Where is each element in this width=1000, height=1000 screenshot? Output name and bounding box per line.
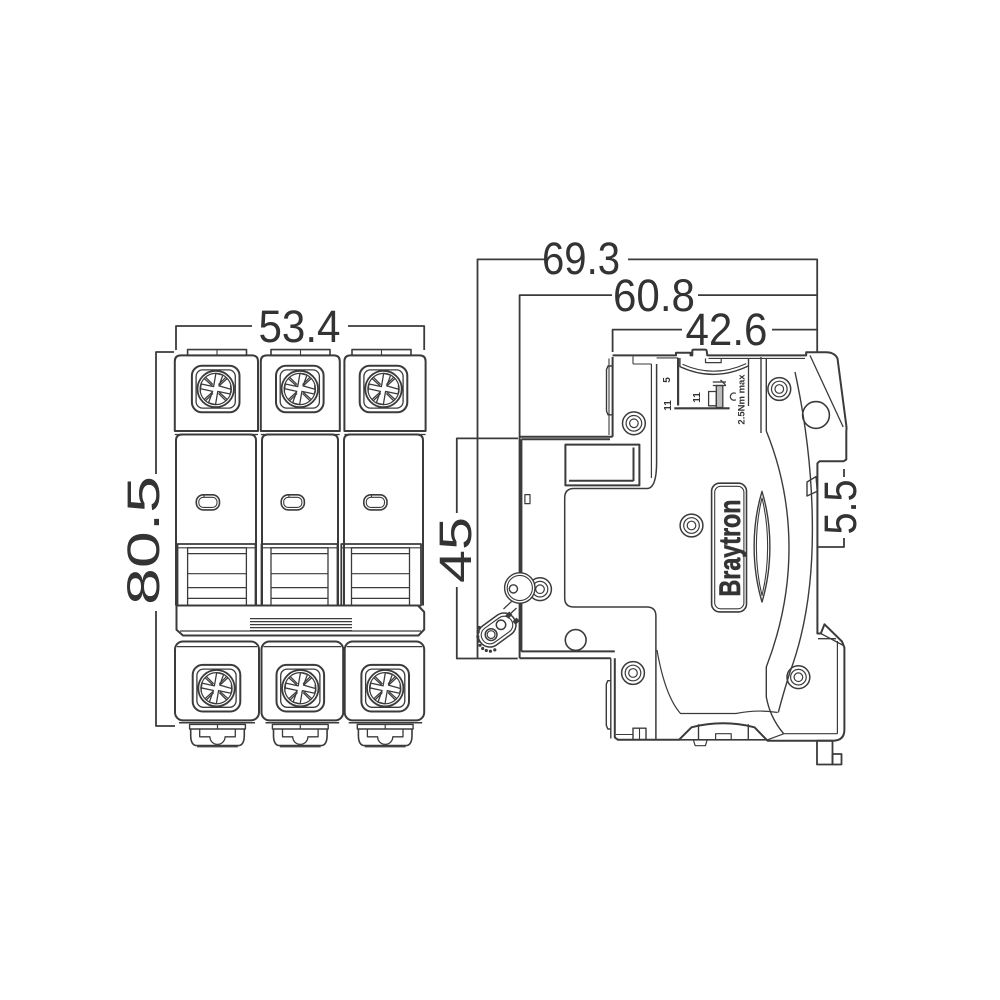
svg-text:11: 11 [692,392,703,403]
svg-text:42.6: 42.6 [686,304,768,355]
svg-text:80.5: 80.5 [118,476,169,605]
svg-text:Braytron: Braytron [714,500,747,597]
svg-text:53.4: 53.4 [259,301,341,352]
svg-text:45: 45 [430,517,481,583]
svg-text:5.5: 5.5 [815,480,866,535]
svg-text:69.3: 69.3 [542,233,620,284]
svg-text:5: 5 [662,377,673,383]
svg-text:60.8: 60.8 [613,270,695,321]
svg-text:11: 11 [663,400,674,411]
svg-text:2.5Nm max: 2.5Nm max [737,374,748,425]
